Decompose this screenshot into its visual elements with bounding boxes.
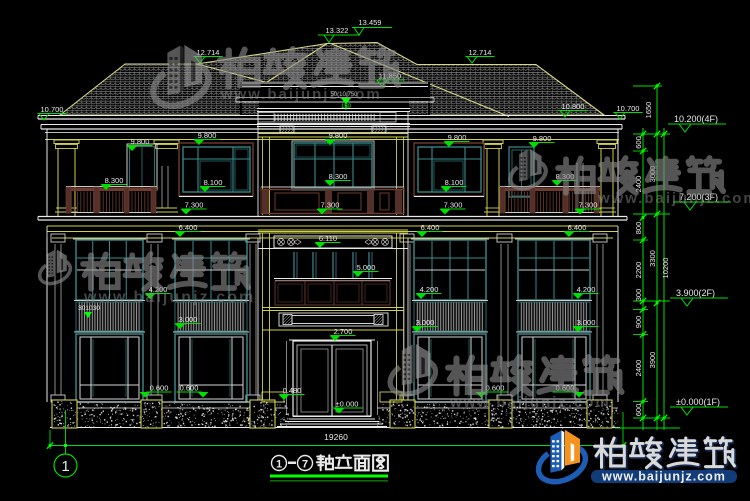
svg-text:8.300: 8.300: [105, 176, 124, 185]
svg-text:1650: 1650: [644, 102, 653, 119]
svg-text:12.714: 12.714: [469, 48, 492, 57]
svg-text:7.300: 7.300: [444, 201, 463, 210]
svg-text:6.400: 6.400: [568, 223, 587, 232]
svg-text:10.800: 10.800: [562, 102, 585, 111]
svg-text:www.baijunjz.com: www.baijunjz.com: [601, 470, 726, 484]
svg-text:9.800: 9.800: [533, 134, 552, 143]
svg-text:1: 1: [61, 458, 69, 475]
svg-text:300: 300: [634, 289, 643, 302]
svg-text:10200: 10200: [661, 258, 670, 279]
svg-text:3.000: 3.000: [179, 315, 198, 324]
svg-text:600: 600: [634, 404, 643, 417]
svg-text:3900: 3900: [648, 352, 657, 369]
svg-text:www.baijunjz.com: www.baijunjz.com: [220, 86, 382, 103]
svg-text:0.600: 0.600: [150, 384, 169, 393]
svg-text:2200: 2200: [634, 262, 643, 279]
svg-text:2.700: 2.700: [334, 327, 353, 336]
svg-text:301030: 301030: [78, 305, 100, 312]
svg-text:13.322: 13.322: [326, 26, 349, 35]
svg-text:3300: 3300: [648, 250, 657, 267]
svg-text:www.baijunjz.com: www.baijunjz.com: [83, 289, 255, 306]
svg-text:0.600: 0.600: [180, 384, 199, 393]
svg-text:3.000: 3.000: [577, 318, 596, 327]
svg-text:www.baijunjz.com: www.baijunjz.com: [597, 190, 750, 207]
svg-text:7.300: 7.300: [185, 201, 204, 210]
svg-text:19260: 19260: [324, 432, 348, 442]
svg-text:10.200(4F): 10.200(4F): [674, 114, 718, 124]
svg-text:800: 800: [634, 222, 643, 235]
svg-text:3.900(2F): 3.900(2F): [676, 288, 715, 298]
svg-text:3.000: 3.000: [416, 318, 435, 327]
svg-text:7.300: 7.300: [321, 201, 340, 210]
svg-text:6.110: 6.110: [319, 234, 337, 243]
svg-text:www.baijunjz.com: www.baijunjz.com: [449, 394, 611, 411]
svg-text:8.300: 8.300: [329, 172, 348, 181]
svg-text:7: 7: [302, 459, 308, 471]
svg-text:8.100: 8.100: [204, 178, 223, 187]
svg-text:±0.000: ±0.000: [336, 400, 359, 409]
svg-text:2400: 2400: [634, 360, 643, 377]
svg-text:6.400: 6.400: [179, 223, 198, 232]
svg-text:±0.000(1F): ±0.000(1F): [676, 397, 720, 407]
svg-text:9.800: 9.800: [198, 131, 217, 140]
svg-text:5.000: 5.000: [357, 263, 376, 272]
svg-text:0.600: 0.600: [486, 384, 505, 393]
svg-text:4.200: 4.200: [420, 285, 439, 294]
svg-text:7.300: 7.300: [579, 201, 598, 210]
svg-text:9.800: 9.800: [448, 133, 467, 142]
svg-text:4.200: 4.200: [577, 285, 596, 294]
svg-text:0.480: 0.480: [283, 386, 302, 395]
svg-text:9.800: 9.800: [131, 137, 150, 146]
svg-text:13.459: 13.459: [359, 18, 382, 27]
svg-text:10.700: 10.700: [41, 105, 64, 114]
svg-text:900: 900: [634, 316, 643, 329]
svg-text:1: 1: [276, 459, 282, 471]
svg-text:9.800: 9.800: [329, 131, 348, 140]
svg-text:8.100: 8.100: [445, 178, 464, 187]
svg-text:6.400: 6.400: [421, 223, 440, 232]
svg-text:600: 600: [634, 136, 643, 149]
svg-text:10.700: 10.700: [617, 104, 640, 113]
